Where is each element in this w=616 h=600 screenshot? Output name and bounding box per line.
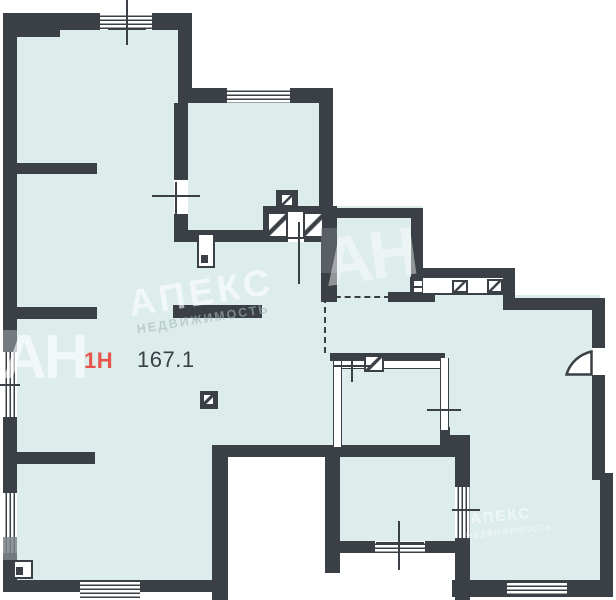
window-bottomright xyxy=(507,583,567,594)
wall-stub-2 xyxy=(13,307,97,319)
dim-divider-window-h xyxy=(452,509,480,511)
unit-label: 1Н xyxy=(84,348,113,374)
dim-midroom-open-v xyxy=(175,182,177,214)
dim-bottommid-window-h xyxy=(376,542,424,544)
dim-thinroom-door-v xyxy=(351,356,353,382)
wall-right-upper xyxy=(592,298,605,478)
wall-stub-3 xyxy=(173,305,262,318)
floor-plan: 1Н 167.1 АН АН АПЕКС НЕДВИЖИМОСТЬ АПЕКС … xyxy=(0,0,616,600)
wall-corridor-top xyxy=(415,268,505,278)
room-fill-left-strip xyxy=(188,445,212,580)
exterior-below-room xyxy=(325,553,455,600)
window-bottom-left xyxy=(80,582,140,598)
room-fill-left-column xyxy=(3,13,192,592)
vent-glyph-top xyxy=(281,194,293,206)
room-fill-mid-left xyxy=(188,242,333,457)
dim-top-window-h xyxy=(108,28,146,30)
wall-stub-1 xyxy=(13,163,97,174)
dim-bottommid-window-v xyxy=(398,521,400,570)
zone-boundary-vertical xyxy=(324,297,326,353)
watermark-shadow-3 xyxy=(321,228,337,273)
dim-thinroom-open-h xyxy=(427,409,461,411)
partition-thinroom-right xyxy=(440,358,449,430)
wall-midroom-left xyxy=(174,103,188,242)
door-thinroom-icon xyxy=(364,355,384,372)
opening-entry-door xyxy=(592,348,605,375)
watermark-shadow-1 xyxy=(3,330,17,352)
wall-rightspace-top xyxy=(505,298,605,310)
vent-glyph-corridor-divider xyxy=(413,286,423,288)
zone-boundary-horizontal xyxy=(325,296,390,298)
window-midroom-top xyxy=(227,88,290,103)
dim-left-window-h xyxy=(0,384,20,386)
watermark-shadow-2 xyxy=(3,537,17,560)
wall-top xyxy=(3,13,192,30)
dim-bath-h xyxy=(280,237,322,239)
dim-top-window-v xyxy=(126,0,128,45)
wall-right-lower xyxy=(600,478,613,585)
column-marker-inner xyxy=(204,395,213,404)
area-label: 167.1 xyxy=(137,347,195,373)
wall-midroom-right xyxy=(319,88,333,218)
door-entry-leaf xyxy=(565,350,593,376)
door-bath-left xyxy=(267,212,288,238)
shaft-box-mark xyxy=(201,255,208,263)
window-divider xyxy=(455,487,470,538)
dim-thinroom-door-h xyxy=(334,365,370,367)
wall-stub-4 xyxy=(13,452,95,464)
door-box-bottomleft-mark xyxy=(16,567,23,575)
wall-notch-left xyxy=(212,445,228,600)
exterior-notch xyxy=(228,457,325,600)
door-corridor-left xyxy=(452,280,468,293)
wall-top-inner-step xyxy=(17,30,60,37)
dim-bath-v xyxy=(298,222,300,284)
door-corridor-right xyxy=(487,279,503,293)
wall-thinroom-right-lower xyxy=(440,427,450,452)
wall-kitchen-top xyxy=(328,208,423,218)
wall-bottommid-left xyxy=(325,445,340,573)
corridor-band-edge xyxy=(423,293,505,295)
partition-thinroom-left xyxy=(333,361,342,447)
wall-thinroom-top xyxy=(330,353,445,361)
